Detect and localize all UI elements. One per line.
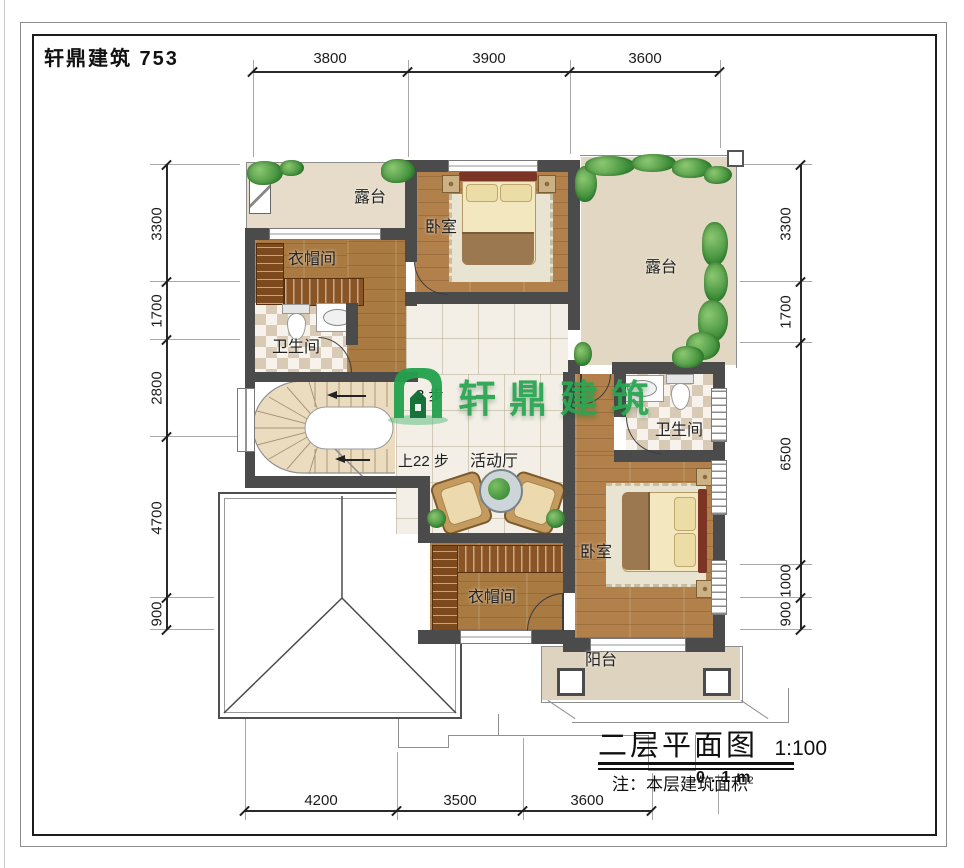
dim-ext bbox=[253, 60, 254, 157]
brand-title: 轩鼎建筑 753 bbox=[44, 42, 179, 71]
dim-line-top bbox=[253, 71, 720, 73]
drawing-title: 二层平面图 bbox=[598, 722, 758, 764]
bed-headboard-bottom bbox=[698, 489, 707, 573]
dim-line-bottom bbox=[245, 810, 652, 812]
wall bbox=[686, 638, 725, 652]
eave-line bbox=[788, 688, 789, 723]
wall bbox=[614, 450, 725, 462]
eave-line bbox=[448, 735, 449, 748]
dim-label: 1700 bbox=[149, 294, 166, 327]
watermark-text: 轩鼎建筑 bbox=[458, 368, 662, 423]
bed-blanket-bottom bbox=[622, 492, 650, 570]
pillow bbox=[500, 184, 532, 202]
dim-label: 3300 bbox=[149, 207, 166, 240]
stair-arrow-head-bottom bbox=[335, 455, 345, 463]
window-balcony-door bbox=[590, 638, 686, 652]
room-label-hall: 活动厅 bbox=[470, 454, 518, 470]
stair-arrow-line-top bbox=[336, 395, 366, 397]
wall bbox=[418, 533, 570, 543]
room-label-terrace-right: 露台 bbox=[645, 260, 677, 276]
pillow bbox=[674, 497, 696, 531]
room-label-balcony: 阳台 bbox=[585, 653, 617, 669]
window-stairwell bbox=[237, 388, 255, 452]
drawing-scale: 1:100 bbox=[774, 737, 827, 761]
dim-ext bbox=[245, 718, 246, 820]
watermark: 轩鼎建筑 bbox=[386, 360, 726, 432]
wall bbox=[563, 638, 590, 652]
dim-label: 3600 bbox=[628, 50, 661, 67]
nightstand bbox=[442, 175, 460, 193]
room-label-bedroom-bottom: 卧室 bbox=[580, 545, 612, 561]
wall bbox=[245, 452, 255, 478]
wall bbox=[245, 476, 430, 488]
dim-ext bbox=[150, 597, 214, 598]
title-underline-thick bbox=[598, 762, 794, 765]
eave-line bbox=[398, 747, 449, 748]
window-bedroom-top bbox=[448, 160, 538, 172]
room-label-cloak-left: 衣帽间 bbox=[288, 252, 336, 268]
dim-label: 3800 bbox=[313, 50, 346, 67]
dim-label: 4200 bbox=[304, 792, 337, 809]
dim-ext bbox=[570, 60, 571, 154]
wardrobe-cloak-left-vertical bbox=[256, 243, 284, 305]
wall bbox=[379, 228, 417, 240]
dim-line-right bbox=[800, 165, 802, 630]
dim-label: 1700 bbox=[778, 295, 795, 328]
door-leaf bbox=[562, 593, 564, 631]
wall bbox=[245, 228, 255, 388]
dim-label: 2800 bbox=[149, 371, 166, 404]
dim-label: 900 bbox=[778, 601, 795, 626]
balcony-column-right bbox=[703, 668, 731, 696]
window-bedroom-bottom-2 bbox=[711, 560, 727, 615]
title-block: 二层平面图 1:100 注：本层建筑面积2 0.1m bbox=[598, 722, 827, 764]
dim-ext bbox=[150, 629, 214, 630]
dim-ext bbox=[720, 60, 721, 148]
dim-label: 900 bbox=[149, 601, 166, 626]
dim-label: 3500 bbox=[443, 792, 476, 809]
dim-line-left bbox=[166, 165, 168, 630]
plant bbox=[546, 509, 565, 528]
stair-steps-label-up: 上22 步 bbox=[398, 454, 449, 469]
bed-blanket-top bbox=[462, 232, 534, 265]
dim-label: 3300 bbox=[778, 207, 795, 240]
wardrobe-cloak-left-rack bbox=[284, 278, 364, 306]
dim-label: 6500 bbox=[778, 437, 795, 470]
area-note: 注：本层建筑面积2 0.1m bbox=[612, 770, 832, 795]
area-note-overlay: 0.1m bbox=[696, 769, 756, 787]
window-terrace-top-left bbox=[269, 228, 381, 240]
dim-ext bbox=[408, 60, 409, 157]
wall bbox=[346, 303, 358, 345]
dim-label: 1000 bbox=[778, 564, 795, 597]
round-table bbox=[479, 469, 523, 513]
terrace-corner-column bbox=[727, 150, 744, 167]
pillow bbox=[674, 533, 696, 567]
room-label-terrace-top-left: 露台 bbox=[354, 190, 386, 206]
dim-label: 3900 bbox=[472, 50, 505, 67]
floor-plan-sheet: 轩鼎建筑 753 bbox=[0, 0, 964, 868]
nightstand bbox=[538, 175, 556, 193]
wall bbox=[418, 630, 460, 644]
staircase bbox=[251, 379, 395, 477]
table-plant bbox=[488, 478, 510, 500]
room-label-cloak-bottom: 衣帽间 bbox=[468, 590, 516, 606]
sheet-edge-line bbox=[4, 0, 5, 868]
plant bbox=[427, 509, 446, 528]
pillow bbox=[466, 184, 498, 202]
window-cloak-bottom bbox=[460, 630, 532, 644]
dim-label: 3600 bbox=[570, 792, 603, 809]
window-bedroom-bottom-1 bbox=[711, 460, 727, 515]
room-label-bath-left: 卫生间 bbox=[272, 340, 320, 356]
stair-arrow-head-top bbox=[327, 391, 337, 399]
eave-line bbox=[398, 715, 399, 748]
bed-headboard-top bbox=[459, 172, 537, 181]
balcony-column-left bbox=[557, 668, 585, 696]
stair-arrow-line-bottom bbox=[344, 459, 370, 461]
dim-label: 4700 bbox=[149, 501, 166, 534]
wall bbox=[405, 292, 580, 304]
room-label-bedroom-top: 卧室 bbox=[425, 220, 457, 236]
watermark-house-icon bbox=[386, 360, 450, 426]
eave-line bbox=[498, 714, 499, 736]
wardrobe-cloak-bottom-vertical bbox=[432, 545, 458, 633]
